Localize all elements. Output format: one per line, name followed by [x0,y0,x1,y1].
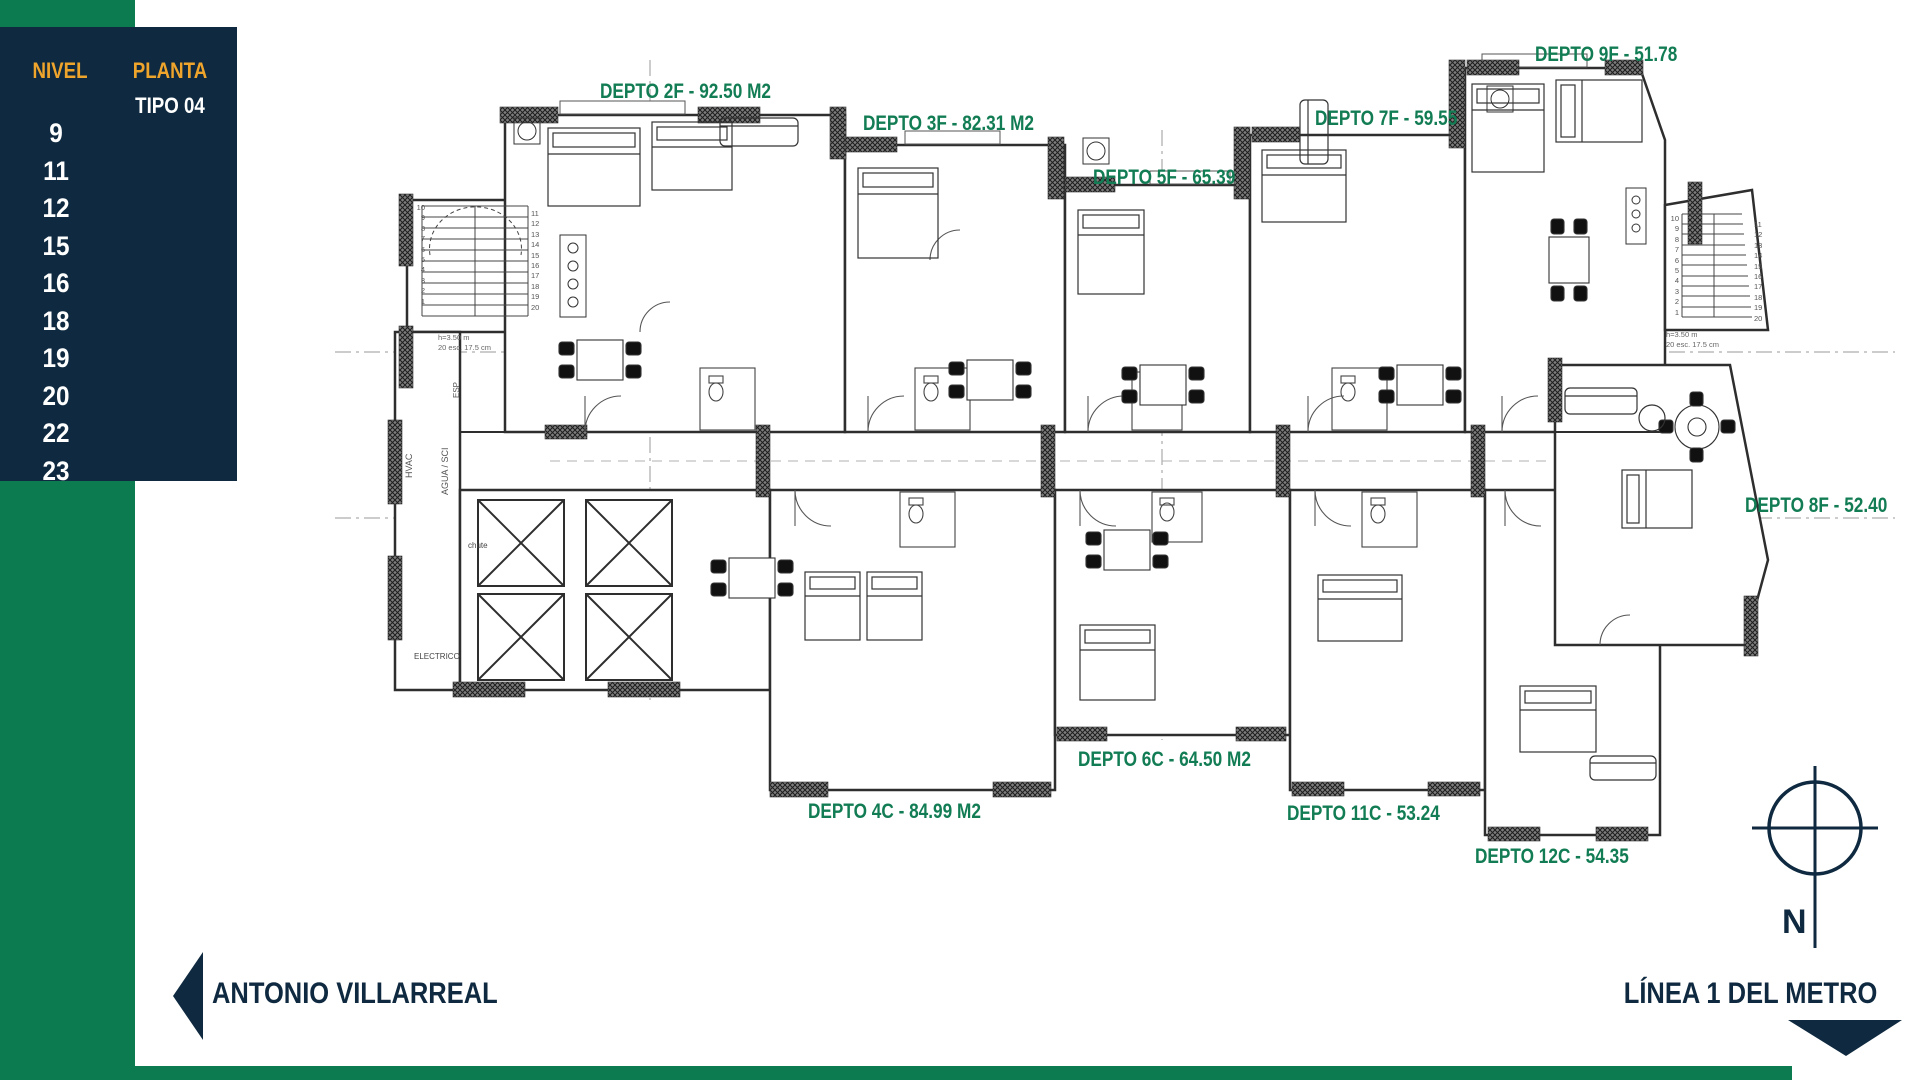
green-bottom-accent [0,1066,1792,1080]
esp-label: ESP [452,382,461,398]
stair-right-numbers-a: 10 9 8 7 6 5 4 3 2 1 [1667,214,1679,318]
street-label-antonio-villarreal: ANTONIO VILLARREAL [212,977,498,1011]
level-item: 22 [20,415,92,453]
nivel-header: NIVEL [26,58,94,84]
hvac-label: HVAC [404,454,414,478]
stair-right-numbers-b: 11 12 13 14 15 16 17 18 19 20 [1754,220,1768,324]
planta-header: PLANTA [128,58,213,84]
level-item: 18 [20,303,92,341]
level-item: 15 [20,228,92,266]
level-item: 16 [20,265,92,303]
unit-label-2F: DEPTO 2F - 92.50 M2 [600,80,771,104]
level-item: 19 [20,340,92,378]
left-arrow-icon [173,952,203,1040]
level-list: 9 11 12 15 16 18 19 20 22 23 [20,115,92,490]
unit-label-4C: DEPTO 4C - 84.99 M2 [808,800,981,824]
unit-label-3F: DEPTO 3F - 82.31 M2 [863,112,1034,136]
planta-value: TIPO 04 [128,93,213,119]
unit-label-8F: DEPTO 8F - 52.40 [1745,494,1887,518]
level-item: 12 [20,190,92,228]
stair-left-numbers-a: 10 9 8 7 6 5 4 3 2 1 [411,203,425,307]
down-arrow-icon [1788,1020,1902,1056]
unit-label-11C: DEPTO 11C - 53.24 [1287,802,1440,826]
level-item: 20 [20,378,92,416]
unit-label-7F: DEPTO 7F - 59.55 [1315,107,1457,131]
level-item: 9 [20,115,92,153]
stair-right-note: h=3.50 m 20 esc. 17.5 cm [1666,330,1719,349]
stair-left-note: h=3.50 m 20 esc. 17.5 cm [438,333,491,352]
electrico-label: ELECTRICO [414,652,460,662]
unit-label-9F: DEPTO 9F - 51.78 [1535,43,1677,67]
agua-sci-label: AGUA / SCI [440,447,450,495]
stair-left-numbers-b: 11 12 13 14 15 16 17 18 19 20 [531,209,545,313]
chute-label: chute [468,541,488,551]
unit-label-5F: DEPTO 5F - 65.39 [1093,166,1235,190]
floor-plan-svg [0,0,1920,1080]
green-top-accent [0,0,135,27]
level-panel: NIVEL PLANTA TIPO 04 9 11 12 15 16 18 19… [0,27,237,481]
compass-north-label: N [1782,903,1807,942]
floorplan-page: NIVEL PLANTA TIPO 04 9 11 12 15 16 18 19… [0,0,1920,1080]
unit-label-12C: DEPTO 12C - 54.35 [1475,845,1629,869]
unit-label-6C: DEPTO 6C - 64.50 M2 [1078,748,1251,772]
compass-icon [1752,766,1878,948]
street-label-linea-1-del-metro: LÍNEA 1 DEL METRO [1623,977,1877,1011]
level-item: 11 [20,153,92,191]
green-left-accent [0,481,135,1077]
